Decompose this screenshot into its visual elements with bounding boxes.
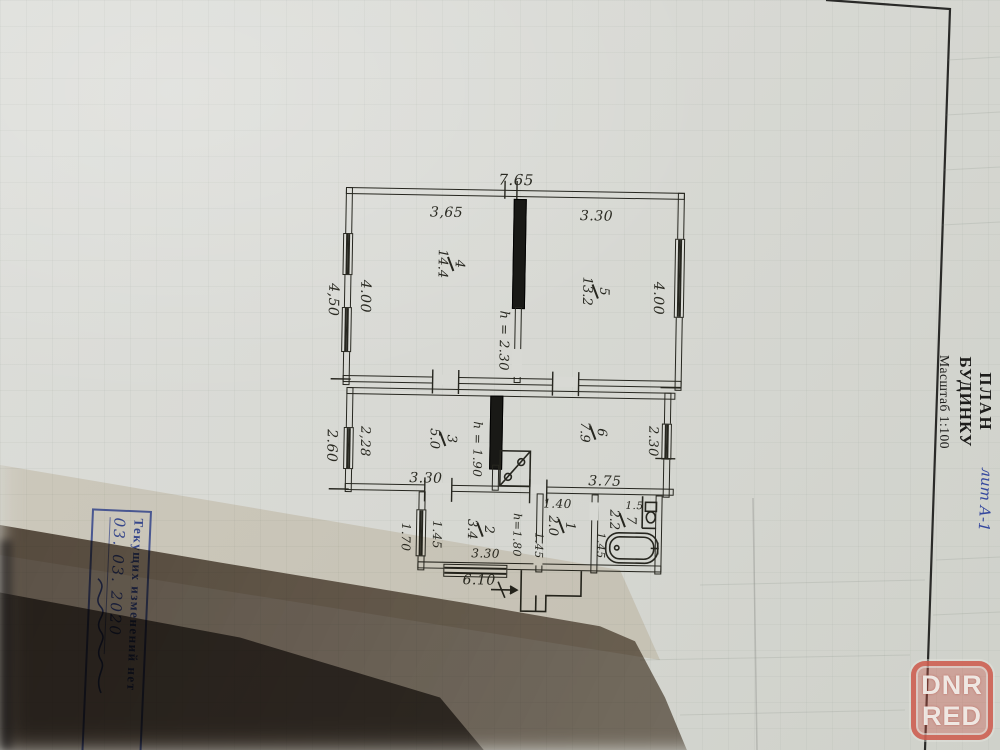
dimension-label: 4.00 <box>357 280 374 313</box>
plan-linework <box>0 0 1000 750</box>
wall-middle-bottom <box>345 483 674 496</box>
dimension-label: h = 1.90 <box>470 421 485 477</box>
dimension-label: 6.10 <box>462 572 495 589</box>
window <box>341 307 352 352</box>
dimension-label: 1.45 <box>594 532 607 559</box>
window <box>416 509 427 556</box>
signature-scribble <box>87 576 108 697</box>
window <box>343 427 354 469</box>
dimension-label: 1.45 <box>430 520 444 549</box>
watermark-line1: DNR <box>921 670 983 701</box>
window <box>342 233 353 275</box>
room-number-area-label: 23.4 <box>465 519 495 540</box>
flue-shaft <box>489 396 503 470</box>
dimension-label: 3,65 <box>430 204 463 221</box>
watermark-line2: RED <box>922 701 982 732</box>
sheet-title-line2: БУДИНКУ <box>955 327 975 477</box>
dimension-label: 4.00 <box>650 282 667 315</box>
room-number-area-label: 414.4 <box>435 249 466 278</box>
photographed-floorplan-sheet: 7.653,653.304,504.004.00h = 2.302.602,28… <box>0 0 1000 750</box>
door-opening <box>512 349 522 377</box>
window <box>674 239 685 318</box>
room-number-area-label: 67.9 <box>578 422 608 443</box>
dimension-label: 1.40 <box>543 496 572 510</box>
room-number-area-label: 72.2 <box>607 509 637 530</box>
sheet-title-line1: ПЛАН <box>975 327 995 477</box>
sheet-scale: Масштаб 1:100 <box>936 327 952 477</box>
dimension-label: 3.30 <box>409 470 442 487</box>
dimension-label: h = 2.30 <box>495 310 511 371</box>
floorplan-drawing: 7.653,653.304,504.004.00h = 2.302.602,28… <box>0 0 1000 750</box>
dimension-label: 2.30 <box>645 426 661 457</box>
page-edge-dark <box>0 540 12 750</box>
partition-3-6 <box>492 465 499 491</box>
dimension-label: 1.70 <box>399 523 413 552</box>
dimension-label: h=1.80 <box>510 513 524 557</box>
door-opening <box>433 375 459 385</box>
dimension-label: 2,28 <box>357 426 373 457</box>
dimension-label: 1.45 <box>532 532 545 559</box>
wall-left-upper <box>343 187 353 385</box>
room-number-area-label: 513.2 <box>580 277 611 306</box>
title-block: ПЛАН БУДИНКУ Масштаб 1:100 <box>936 327 995 477</box>
dimension-label: 3.30 <box>471 546 500 560</box>
wall-right-lower <box>654 495 662 574</box>
dimension-label: 3.30 <box>580 208 613 225</box>
wall-middle-top <box>346 387 675 400</box>
dimension-label: 2.60 <box>323 429 340 462</box>
flue-shaft <box>512 199 527 309</box>
dimension-label: 7.65 <box>498 171 534 190</box>
room-number-area-label: 12.0 <box>546 515 576 536</box>
room-number-area-label: 35.0 <box>427 428 457 449</box>
window <box>661 424 672 460</box>
registration-stamp: Текущих изменений нет 03. 03. 2020 <box>81 508 152 750</box>
dnr-red-watermark: DNR RED <box>911 661 993 740</box>
door-opening <box>553 377 579 387</box>
door-opening <box>589 502 598 520</box>
dimension-label: 4,50 <box>325 283 342 316</box>
dimension-label: 3.75 <box>588 473 621 490</box>
